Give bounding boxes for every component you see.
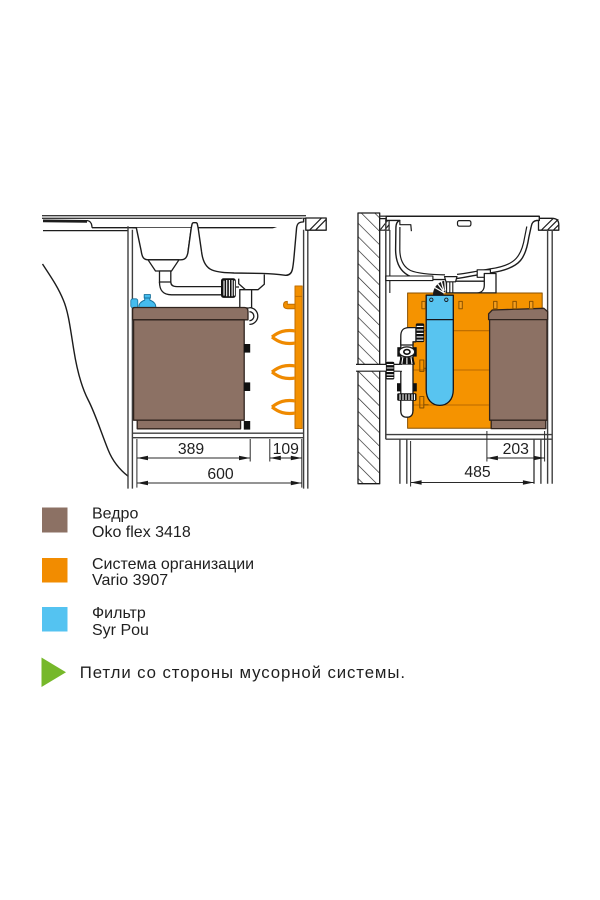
svg-text:Vario 3907: Vario 3907 <box>92 572 168 589</box>
svg-text:Oko flex 3418: Oko flex 3418 <box>92 524 191 541</box>
svg-text:Syr Pou: Syr Pou <box>92 622 149 639</box>
svg-text:Фильтр: Фильтр <box>92 605 146 622</box>
svg-text:Петли со стороны мусорной сист: Петли со стороны мусорной системы. <box>80 663 406 682</box>
svg-text:485: 485 <box>464 464 491 481</box>
svg-text:Ведро: Ведро <box>92 506 138 523</box>
svg-text:600: 600 <box>207 466 234 483</box>
svg-text:389: 389 <box>178 441 205 458</box>
svg-text:203: 203 <box>503 441 530 458</box>
svg-text:Система организации: Система организации <box>92 556 254 573</box>
svg-text:109: 109 <box>273 441 300 458</box>
